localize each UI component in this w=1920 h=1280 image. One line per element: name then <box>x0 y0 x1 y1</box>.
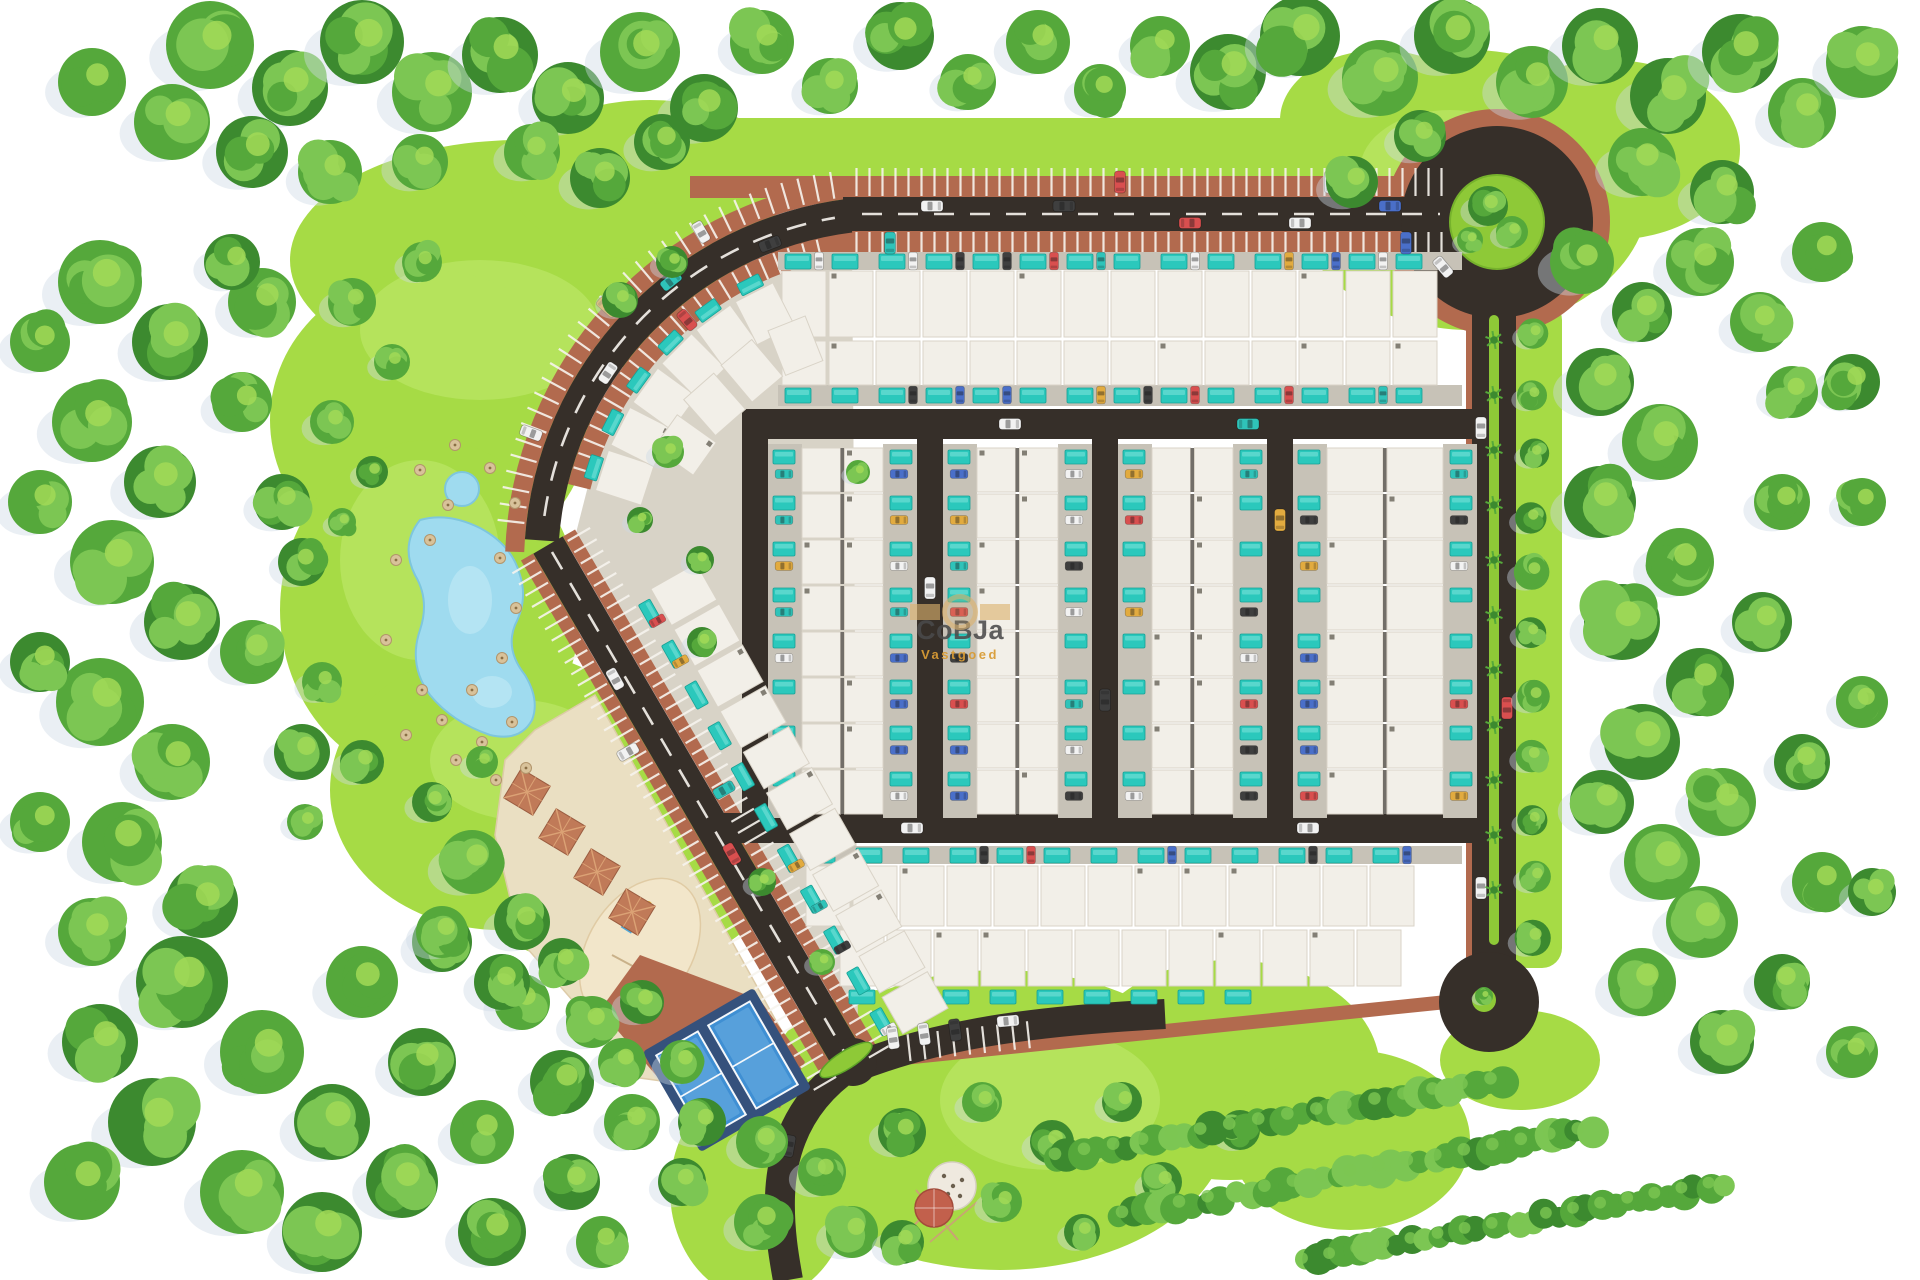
pool <box>1091 848 1117 863</box>
car-icon <box>1240 654 1258 663</box>
car-icon <box>1300 792 1318 801</box>
car-icon <box>775 470 793 479</box>
pool <box>943 990 969 1004</box>
umbrella-icon <box>381 635 392 646</box>
pool <box>1326 848 1352 863</box>
pool <box>773 588 795 602</box>
car-icon <box>1003 386 1012 404</box>
pool <box>890 772 912 786</box>
pool <box>879 388 905 403</box>
pool <box>1240 634 1262 648</box>
pool <box>903 848 929 863</box>
umbrella-icon <box>507 717 518 728</box>
pool <box>948 450 970 464</box>
umbrella-icon <box>497 653 508 664</box>
car-icon <box>815 252 824 270</box>
pool <box>1302 254 1328 269</box>
car-icon <box>1097 252 1106 270</box>
pool <box>948 634 970 648</box>
car-icon <box>1450 792 1468 801</box>
pool <box>1114 254 1140 269</box>
pool <box>1020 388 1046 403</box>
pool <box>1232 848 1258 863</box>
car-icon <box>1450 700 1468 709</box>
car-icon <box>950 470 968 479</box>
car-icon <box>1065 608 1083 617</box>
car-icon <box>1297 823 1319 834</box>
pool <box>973 388 999 403</box>
umbrella-icon <box>417 685 428 696</box>
pool <box>1450 542 1472 556</box>
pool <box>1123 772 1145 786</box>
umbrella-icon <box>450 440 461 451</box>
pool <box>1065 588 1087 602</box>
pool <box>1208 388 1234 403</box>
car-icon <box>1240 700 1258 709</box>
car-icon <box>950 746 968 755</box>
pool <box>1450 450 1472 464</box>
pool <box>1298 542 1320 556</box>
umbrella-icon <box>521 763 532 774</box>
pool <box>879 254 905 269</box>
pool <box>1065 772 1087 786</box>
car-icon <box>1285 386 1294 404</box>
pool <box>1302 388 1328 403</box>
car-icon <box>1476 417 1487 439</box>
car-icon <box>1125 608 1143 617</box>
pool <box>1123 542 1145 556</box>
pool <box>1138 848 1164 863</box>
pool <box>1065 542 1087 556</box>
pool <box>990 990 1016 1004</box>
pool <box>1240 772 1262 786</box>
pool <box>1037 990 1063 1004</box>
pool <box>926 254 952 269</box>
pool <box>1298 450 1320 464</box>
car-icon <box>1450 470 1468 479</box>
pool <box>997 848 1023 863</box>
pool <box>1349 254 1375 269</box>
pool <box>1178 990 1204 1004</box>
car-icon <box>909 252 918 270</box>
pool <box>1298 680 1320 694</box>
car-icon <box>956 252 965 270</box>
car-icon <box>1191 386 1200 404</box>
car-icon <box>1065 562 1083 571</box>
umbrella-icon <box>485 463 496 474</box>
pool <box>890 588 912 602</box>
umbrella-icon <box>451 755 462 766</box>
car-icon <box>1300 516 1318 525</box>
car-icon <box>1300 654 1318 663</box>
umbrella-icon <box>443 500 454 511</box>
pool <box>832 388 858 403</box>
pool <box>948 680 970 694</box>
umbrella-icon <box>437 715 448 726</box>
pool <box>1255 254 1281 269</box>
pool <box>1450 680 1472 694</box>
car-icon <box>1065 470 1083 479</box>
pool <box>1065 634 1087 648</box>
pool <box>948 772 970 786</box>
pool <box>773 496 795 510</box>
car-icon <box>890 700 908 709</box>
pool <box>926 388 952 403</box>
car-icon <box>980 846 989 864</box>
pool <box>773 634 795 648</box>
pool <box>1123 634 1145 648</box>
umbrella-icon <box>425 535 436 546</box>
car-icon <box>1191 252 1200 270</box>
car-icon <box>925 577 936 599</box>
car-icon <box>950 608 968 617</box>
car-icon <box>1275 509 1286 531</box>
pool <box>773 680 795 694</box>
pool <box>832 254 858 269</box>
umbrella-icon <box>391 555 402 566</box>
car-icon <box>1125 470 1143 479</box>
car-icon <box>1502 697 1513 719</box>
pool <box>1123 588 1145 602</box>
pool <box>948 542 970 556</box>
car-icon <box>1403 846 1412 864</box>
pool <box>1450 772 1472 786</box>
car-icon <box>1289 218 1311 229</box>
pool <box>1065 726 1087 740</box>
pool <box>1208 254 1234 269</box>
car-icon <box>1309 846 1318 864</box>
car-icon <box>921 201 943 212</box>
pool <box>890 450 912 464</box>
car-icon <box>1125 792 1143 801</box>
pool <box>1240 542 1262 556</box>
umbrella-icon <box>510 498 521 509</box>
car-icon <box>775 516 793 525</box>
pool <box>890 726 912 740</box>
pool <box>1240 450 1262 464</box>
car-icon <box>775 608 793 617</box>
pool <box>1225 990 1251 1004</box>
pool <box>1067 388 1093 403</box>
pool <box>890 496 912 510</box>
car-icon <box>1053 201 1075 212</box>
pool <box>1161 254 1187 269</box>
pool <box>1240 680 1262 694</box>
car-icon <box>1379 252 1388 270</box>
pool <box>1298 726 1320 740</box>
pool <box>785 388 811 403</box>
umbrella-icon <box>511 603 522 614</box>
pool <box>1084 990 1110 1004</box>
car-icon <box>1003 252 1012 270</box>
car-icon <box>1115 171 1126 193</box>
pool <box>1123 496 1145 510</box>
car-icon <box>1450 562 1468 571</box>
car-icon <box>1240 608 1258 617</box>
pool <box>890 634 912 648</box>
car-icon <box>890 516 908 525</box>
umbrella-icon <box>415 465 426 476</box>
pool <box>1349 388 1375 403</box>
pool <box>1450 588 1472 602</box>
pool <box>1114 388 1140 403</box>
pool <box>1131 990 1157 1004</box>
car-icon <box>1300 700 1318 709</box>
car-icon <box>1450 516 1468 525</box>
car-icon <box>885 232 896 254</box>
car-icon <box>1285 252 1294 270</box>
car-icon <box>890 792 908 801</box>
pool <box>1255 388 1281 403</box>
pool <box>950 848 976 863</box>
car-icon <box>1379 201 1401 212</box>
pool <box>1279 848 1305 863</box>
umbrella-icon <box>491 775 502 786</box>
pool <box>1065 450 1087 464</box>
pool <box>1123 450 1145 464</box>
pool <box>1065 496 1087 510</box>
car-icon <box>901 823 923 834</box>
umbrella-icon <box>401 730 412 741</box>
car-icon <box>890 608 908 617</box>
car-icon <box>1179 218 1201 229</box>
site-plan-canvas <box>0 0 1920 1280</box>
car-icon <box>775 562 793 571</box>
pool <box>773 542 795 556</box>
car-icon <box>775 654 793 663</box>
car-icon <box>1050 252 1059 270</box>
car-icon <box>1237 419 1259 430</box>
pool <box>1298 588 1320 602</box>
car-icon <box>890 654 908 663</box>
car-icon <box>950 700 968 709</box>
car-icon <box>1401 232 1412 254</box>
pool <box>973 254 999 269</box>
pool <box>948 496 970 510</box>
car-icon <box>999 419 1021 430</box>
pool <box>1298 634 1320 648</box>
car-icon <box>1144 386 1153 404</box>
car-icon <box>1065 792 1083 801</box>
car-icon <box>1379 386 1388 404</box>
pool <box>1065 680 1087 694</box>
car-icon <box>1240 792 1258 801</box>
car-icon <box>1240 470 1258 479</box>
master-plan-rendering: CoBJa Vastgoed <box>0 0 1920 1280</box>
pool <box>1161 388 1187 403</box>
pool <box>1450 726 1472 740</box>
car-icon <box>1300 746 1318 755</box>
umbrella-icon <box>495 553 506 564</box>
car-icon <box>1065 700 1083 709</box>
pool <box>1240 726 1262 740</box>
pool <box>1123 726 1145 740</box>
pool <box>785 254 811 269</box>
car-icon <box>1027 846 1036 864</box>
car-icon <box>1168 846 1177 864</box>
pool <box>890 542 912 556</box>
car-icon <box>1476 877 1487 899</box>
car-icon <box>1332 252 1341 270</box>
car-icon <box>890 746 908 755</box>
car-icon <box>950 516 968 525</box>
car-icon <box>890 562 908 571</box>
pool <box>890 680 912 694</box>
pool <box>1123 680 1145 694</box>
car-icon <box>950 792 968 801</box>
pool <box>1450 634 1472 648</box>
car-icon <box>950 562 968 571</box>
pool <box>1298 496 1320 510</box>
car-icon <box>1100 689 1111 711</box>
car-icon <box>1240 746 1258 755</box>
car-icon <box>1065 746 1083 755</box>
car-icon <box>997 1015 1020 1028</box>
pool <box>1185 848 1211 863</box>
pool <box>1396 254 1422 269</box>
pool <box>1396 388 1422 403</box>
car-icon <box>909 386 918 404</box>
car-icon <box>1300 562 1318 571</box>
pool <box>1020 254 1046 269</box>
car-icon <box>1065 516 1083 525</box>
umbrella-icon <box>477 737 488 748</box>
pool <box>1240 496 1262 510</box>
pool <box>948 726 970 740</box>
pool <box>1373 848 1399 863</box>
car-icon <box>1125 516 1143 525</box>
pool <box>1044 848 1070 863</box>
pool <box>1067 254 1093 269</box>
car-icon <box>1097 386 1106 404</box>
pool <box>773 450 795 464</box>
umbrella-icon <box>467 685 478 696</box>
pool <box>1450 496 1472 510</box>
car-icon <box>956 386 965 404</box>
pool <box>1298 772 1320 786</box>
car-icon <box>890 470 908 479</box>
pool <box>1240 588 1262 602</box>
car-icon <box>950 654 968 663</box>
pool <box>948 588 970 602</box>
